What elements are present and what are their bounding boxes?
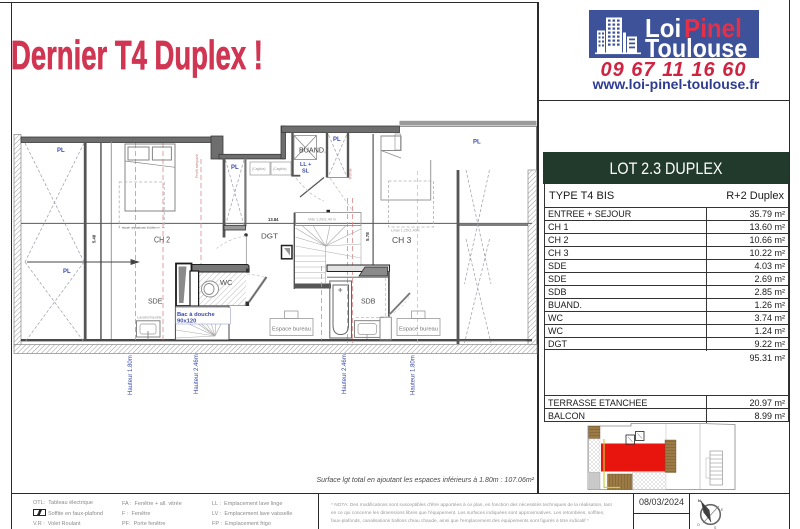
svg-text:Hauteur 2.46m: Hauteur 2.46m xyxy=(342,354,348,394)
svg-text:PL: PL xyxy=(63,269,71,275)
svg-text:PL: PL xyxy=(57,148,65,154)
svg-text:SL: SL xyxy=(302,169,310,175)
svg-text:CH 3: CH 3 xyxy=(392,235,412,245)
svg-text:N: N xyxy=(698,498,701,503)
svg-text:Trémie: Trémie xyxy=(349,168,353,180)
svg-text:5.48: 5.48 xyxy=(92,234,97,243)
svg-text:Vide 1.20x1.40 m: Vide 1.20x1.40 m xyxy=(308,218,336,222)
svg-text:PL: PL xyxy=(473,140,481,146)
svg-text:CH 2: CH 2 xyxy=(154,235,170,245)
svg-text:13.84: 13.84 xyxy=(268,217,279,222)
svg-text:PL: PL xyxy=(333,137,341,143)
svg-text:Hauteur 1.80m: Hauteur 1.80m xyxy=(411,355,417,395)
svg-text:SDB: SDB xyxy=(361,299,376,306)
svg-text:SDE: SDE xyxy=(148,299,163,306)
svg-text:WC: WC xyxy=(220,278,233,287)
svg-text:Hauteur 1.80m: Hauteur 1.80m xyxy=(128,355,134,395)
svg-text:(Cagibis): (Cagibis) xyxy=(252,167,266,171)
svg-text:Lavabo/meuble: Lavabo/meuble xyxy=(137,316,162,320)
svg-text:E: E xyxy=(721,508,724,512)
svg-text:5.78: 5.78 xyxy=(365,232,370,241)
svg-text:Espace bureau: Espace bureau xyxy=(399,327,438,333)
svg-text:Espace bureau: Espace bureau xyxy=(272,327,311,333)
svg-text:Hauteur 2.46m: Hauteur 2.46m xyxy=(194,354,200,394)
svg-text:LL +: LL + xyxy=(300,162,311,168)
svg-text:PL: PL xyxy=(231,165,239,171)
svg-text:BUAND.: BUAND. xyxy=(299,146,326,155)
svg-text:Bac à douche: Bac à douche xyxy=(177,312,215,318)
svg-text:Lmax 1.25x1.40m: Lmax 1.25x1.40m xyxy=(391,229,420,233)
svg-text:DGT: DGT xyxy=(261,232,278,241)
svg-text:Profil rampant: Profil rampant xyxy=(195,153,199,178)
svg-text:O: O xyxy=(697,523,700,527)
svg-text:90x120: 90x120 xyxy=(177,319,196,325)
svg-text:haut. s/plafond 1.80m: haut. s/plafond 1.80m xyxy=(122,226,157,230)
svg-text:(Cagibis): (Cagibis) xyxy=(273,167,287,171)
